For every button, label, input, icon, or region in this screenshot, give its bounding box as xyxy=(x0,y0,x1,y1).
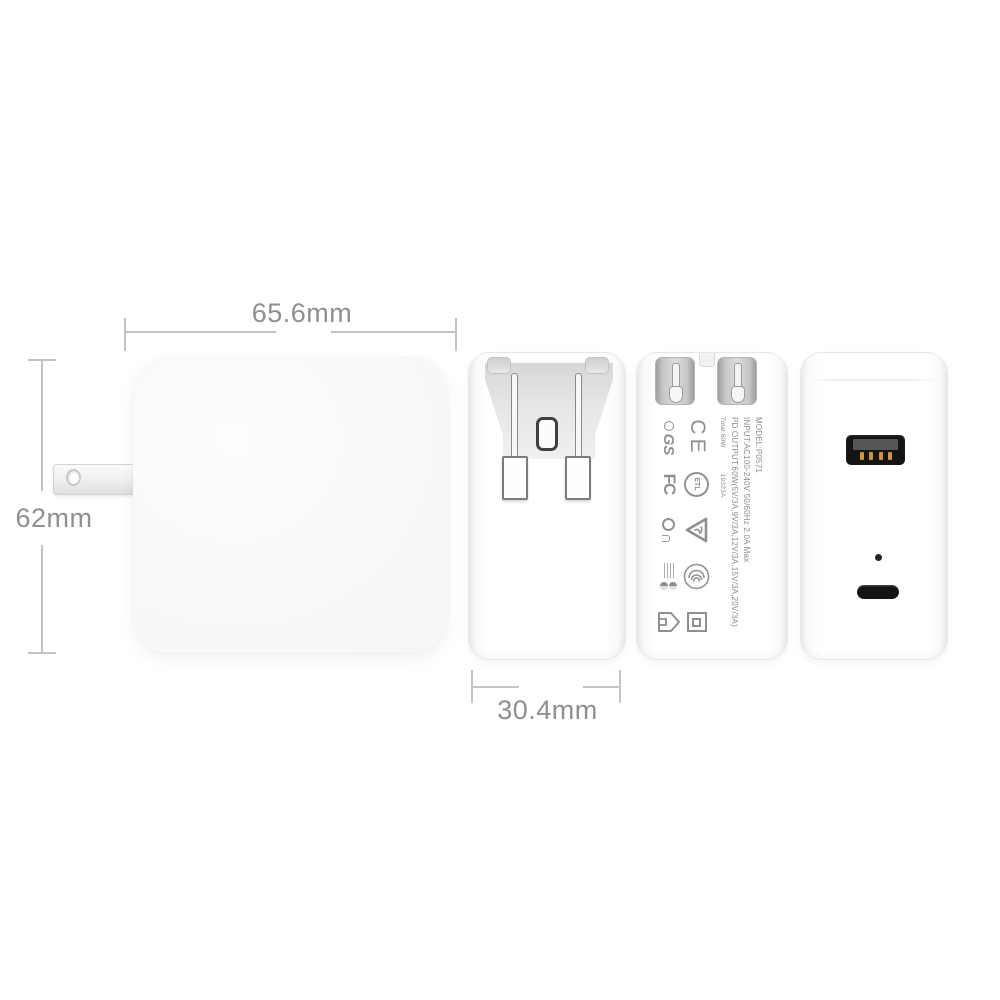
ce-mark-icon: CE xyxy=(683,415,711,461)
width-dimension-label: 65.6mm xyxy=(232,298,372,329)
usb-c-port xyxy=(857,585,899,599)
cert-row-2: GS FC xyxy=(655,415,683,647)
prong-slot-right xyxy=(717,357,757,405)
spec-text-block: MODEL:P0571 INPUT:AC100-240V 50/60Hz 2.0… xyxy=(716,405,788,655)
spec-output-line: PD OUTPUT:60W(5V/3A,9V/3A,12V/3A,15V/3A,… xyxy=(728,417,740,655)
width-dim-tick-right xyxy=(455,318,457,351)
back-top-tab xyxy=(699,353,715,367)
indoor-use-house-icon xyxy=(655,599,683,645)
spec-label: MODEL:P0571 INPUT:AC100-240V 50/60Hz 2.0… xyxy=(648,405,788,655)
prong-slot-left xyxy=(655,357,695,405)
folded-prong-stem-right xyxy=(575,373,582,459)
width-dim-line-right xyxy=(331,331,457,333)
cert-row-1: CE ETL xyxy=(683,415,711,647)
body-seam xyxy=(809,379,939,381)
prong-latch-clip xyxy=(536,417,558,451)
prong-silhouette-tip xyxy=(731,386,745,403)
height-dimension-label: 62mm xyxy=(8,503,100,534)
ccc-mark-icon xyxy=(683,553,711,599)
spec-batch-code: 19323A xyxy=(719,474,726,498)
charger-front-view xyxy=(133,357,448,653)
depth-dimension-label: 30.4mm xyxy=(475,695,620,726)
hinge-cap-left xyxy=(487,357,511,374)
usb-a-tongue xyxy=(853,439,898,450)
depth-dim-line-left xyxy=(471,686,519,688)
rcm-circle-mark-icon xyxy=(655,507,683,553)
depth-dim-line-right xyxy=(583,686,621,688)
usb-a-pins xyxy=(860,452,892,460)
certification-marks: CE ETL xyxy=(655,405,716,655)
width-dim-tick-left xyxy=(124,318,126,351)
led-indicator xyxy=(875,554,882,561)
charger-side-view xyxy=(468,352,626,660)
spec-model-line: MODEL:P0571 xyxy=(752,417,764,655)
cqc-triangle-mark-icon xyxy=(683,507,711,553)
class-ii-double-insulation-icon xyxy=(683,599,711,645)
charger-port-view xyxy=(800,352,948,660)
spec-total-wattage: Total 60W xyxy=(719,417,726,448)
spec-total-line: Total 60W19323A xyxy=(716,417,728,655)
hinge-cap-right xyxy=(585,357,609,374)
efficiency-fineprint-mark-icon xyxy=(655,553,683,599)
folded-prong-stem-left xyxy=(511,373,518,459)
fcc-mark-icon: FC xyxy=(655,461,683,507)
folded-prong-right xyxy=(565,456,591,500)
product-dimension-diagram: 65.6mm 62mm 30.4mm xyxy=(0,0,1000,1000)
usb-a-port xyxy=(846,435,905,465)
prong-hole xyxy=(66,469,81,486)
etl-mark-icon: ETL xyxy=(683,461,711,507)
height-dim-line-bottom xyxy=(41,545,43,654)
prong-silhouette-tip xyxy=(669,386,683,403)
height-dim-line-top xyxy=(41,359,43,491)
plug-prong xyxy=(53,464,141,495)
folded-prong-left xyxy=(502,456,528,500)
tuv-gs-mark-icon: GS xyxy=(655,415,683,461)
width-dim-line-left xyxy=(124,331,276,333)
spec-input-line: INPUT:AC100-240V 50/60Hz 2.0A Max xyxy=(740,417,752,655)
